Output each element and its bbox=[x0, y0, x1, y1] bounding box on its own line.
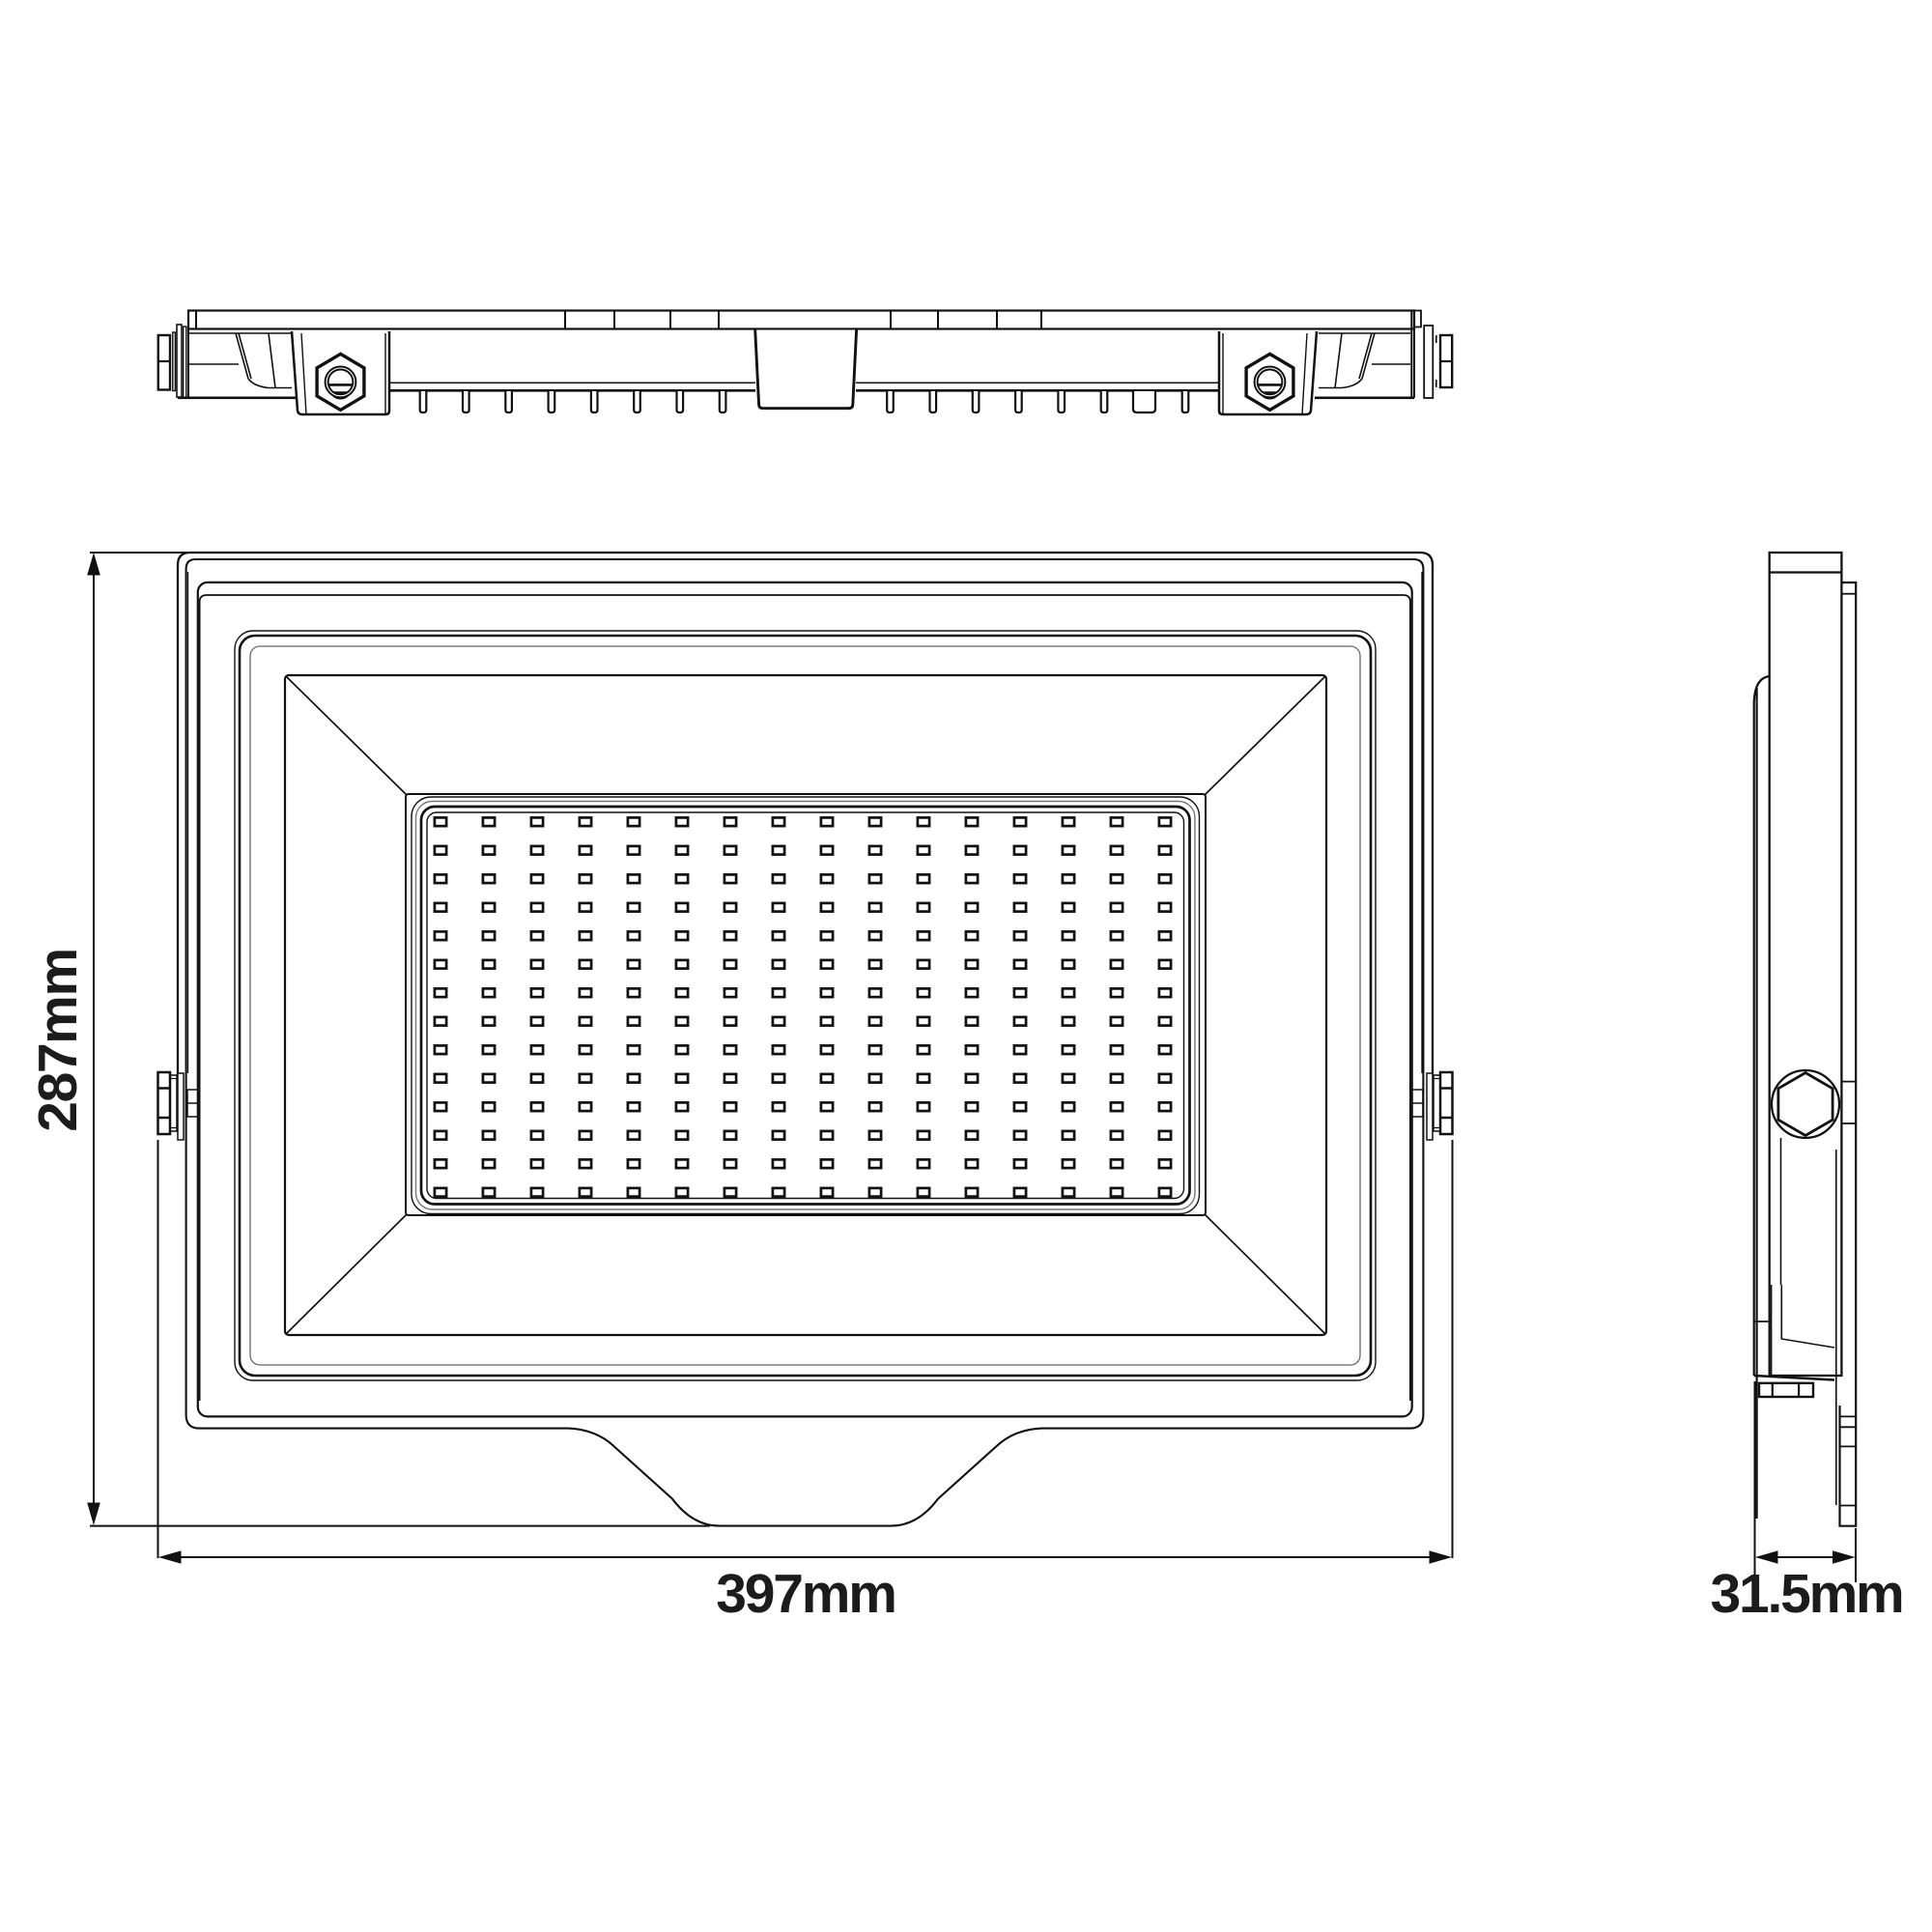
svg-text:287mm: 287mm bbox=[27, 949, 89, 1131]
svg-text:31.5mm: 31.5mm bbox=[1710, 1563, 1902, 1625]
svg-text:397mm: 397mm bbox=[716, 1563, 895, 1625]
